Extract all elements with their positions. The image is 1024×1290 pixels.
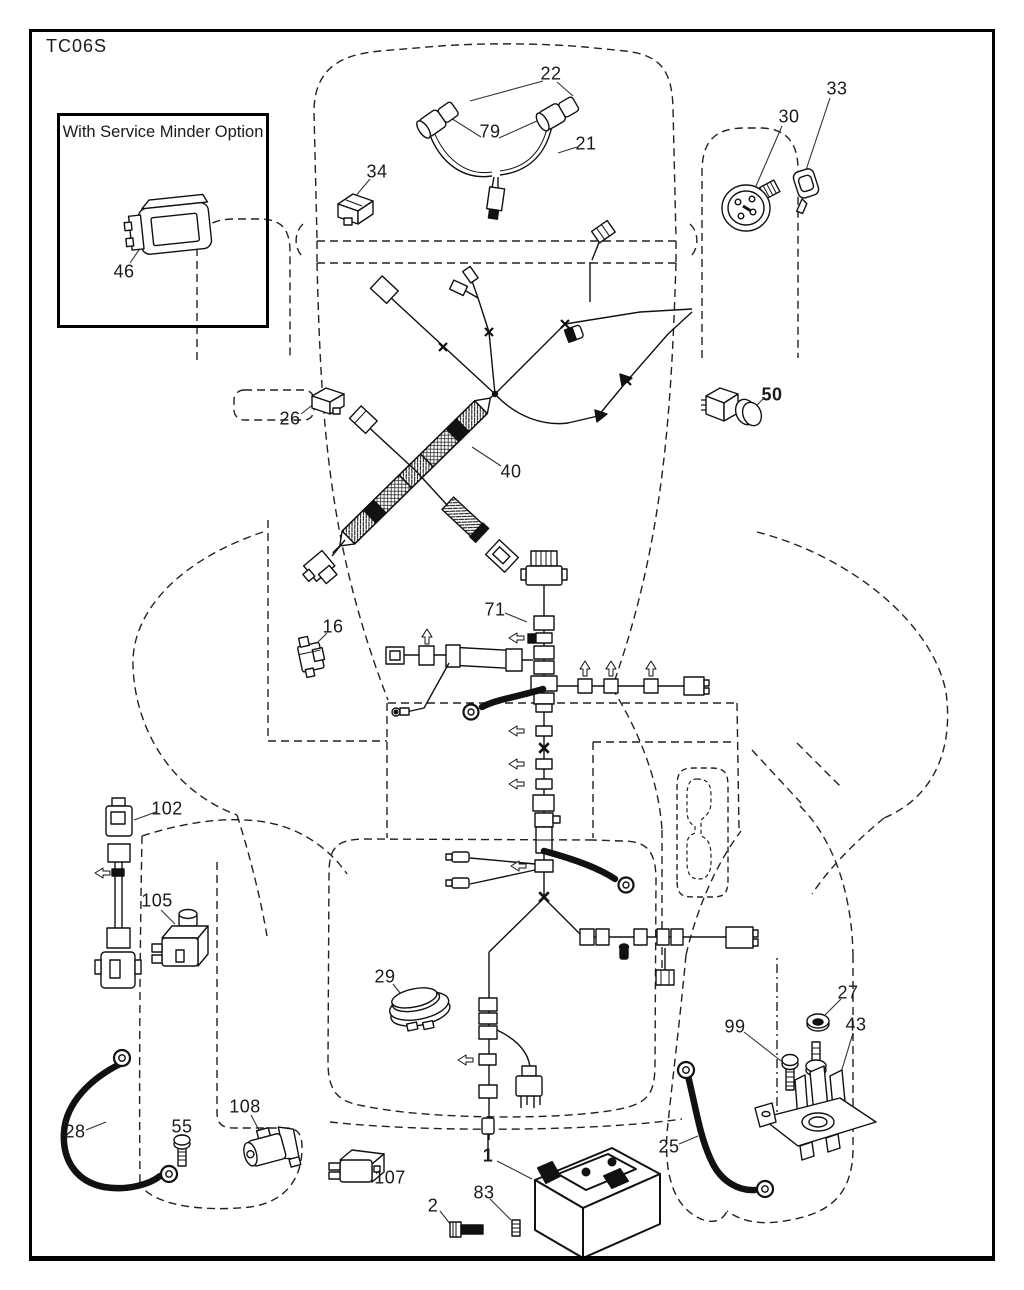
parts-diagram-page: { "title": "TC06S", "inset": { "label": … [0,0,1024,1290]
inset-label: With Service Minder Option [60,123,266,142]
service-minder-inset-box: With Service Minder Option [57,113,269,328]
page-title: TC06S [46,36,107,57]
